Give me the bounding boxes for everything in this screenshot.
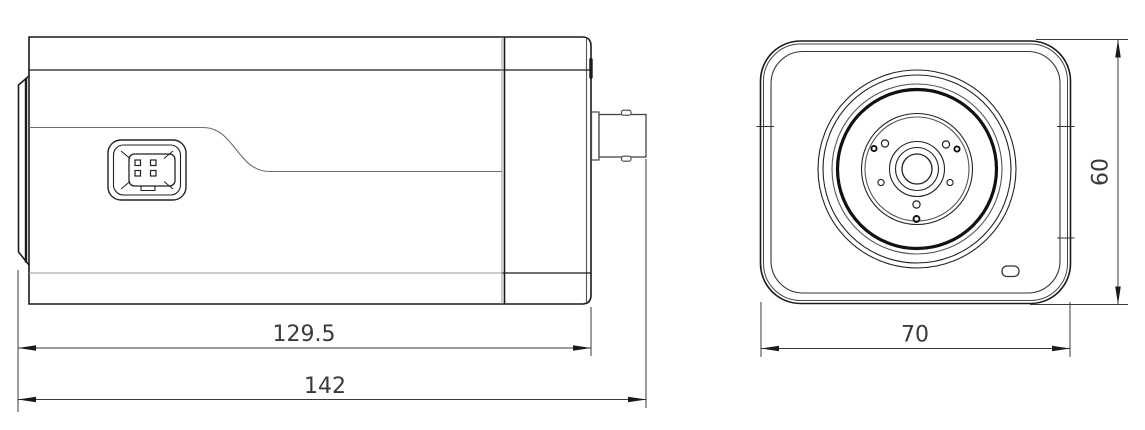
- lens-trim-ring-inner: [832, 84, 1002, 254]
- lens-trim-ring-outer: [818, 70, 1016, 268]
- arrowhead-left: [18, 345, 36, 351]
- dimension-label-front-width: 70: [901, 323, 929, 348]
- lens-mount-edge: [19, 76, 30, 265]
- dimension-label-front-height: 60: [1089, 158, 1114, 186]
- lens-barrel-ring: [890, 142, 945, 197]
- dimension-label-body-length: 129.5: [273, 322, 336, 347]
- connector-pin-2: [151, 160, 157, 166]
- arrowhead-right: [628, 397, 646, 403]
- arrowhead-right: [573, 345, 591, 351]
- screw-hole-right: [947, 179, 953, 185]
- bnc-connector: [592, 110, 647, 161]
- side-view: 129.5 142: [18, 37, 646, 412]
- rear-edge-plug: [589, 58, 592, 79]
- pin-hole-top-right: [954, 146, 959, 151]
- camera-dimension-drawing: 129.5 142: [0, 0, 1145, 430]
- bnc-barrel: [599, 115, 646, 158]
- connector-chamfer-bl: [121, 182, 130, 190]
- dimension-label-total-length: 142: [304, 374, 346, 399]
- drawing-canvas: 129.5 142: [0, 0, 1145, 430]
- screw-hole-top-left: [881, 140, 888, 147]
- front-view: 70 60: [757, 40, 1129, 358]
- screw-hole-left: [878, 179, 884, 185]
- pin-hole-top-left: [871, 146, 876, 151]
- connector-chamfer-tl: [121, 151, 130, 159]
- cover-curve-line: [29, 128, 502, 172]
- dimension-front-width: 70: [761, 302, 1070, 357]
- arrowhead-bottom: [1115, 287, 1121, 305]
- bnc-lug-top: [622, 110, 632, 115]
- screw-hole-top-right: [942, 141, 949, 148]
- front-outline-outer: [761, 41, 1071, 304]
- front-outline-rolled-edge: [764, 44, 1068, 301]
- connector-key-tab: [141, 186, 155, 191]
- bnc-collar: [592, 112, 600, 160]
- connector-pin-1: [135, 160, 141, 166]
- bnc-lug-bottom: [622, 156, 632, 161]
- lens-trim-ring-mid: [823, 75, 1011, 263]
- lens-assembly: [818, 70, 1016, 268]
- arrowhead-right: [1052, 346, 1070, 352]
- arrowhead-top: [1115, 40, 1121, 58]
- mount-plate-circle-inner: [865, 117, 969, 221]
- connector-pin-4: [151, 171, 157, 177]
- lens-mount-outline: [19, 76, 30, 265]
- front-bezel-line: [771, 52, 1060, 294]
- pin-hole-bottom: [914, 216, 920, 222]
- lens-aperture-circle: [902, 154, 932, 184]
- accessory-connector-4pin: [108, 140, 186, 200]
- led-indicator-window: [1002, 266, 1019, 277]
- connector-pin-3: [135, 171, 141, 177]
- screw-hole-bottom: [913, 201, 920, 208]
- dimension-front-height: 60: [1030, 40, 1128, 305]
- arrowhead-left: [18, 397, 36, 403]
- arrowhead-left: [761, 346, 779, 352]
